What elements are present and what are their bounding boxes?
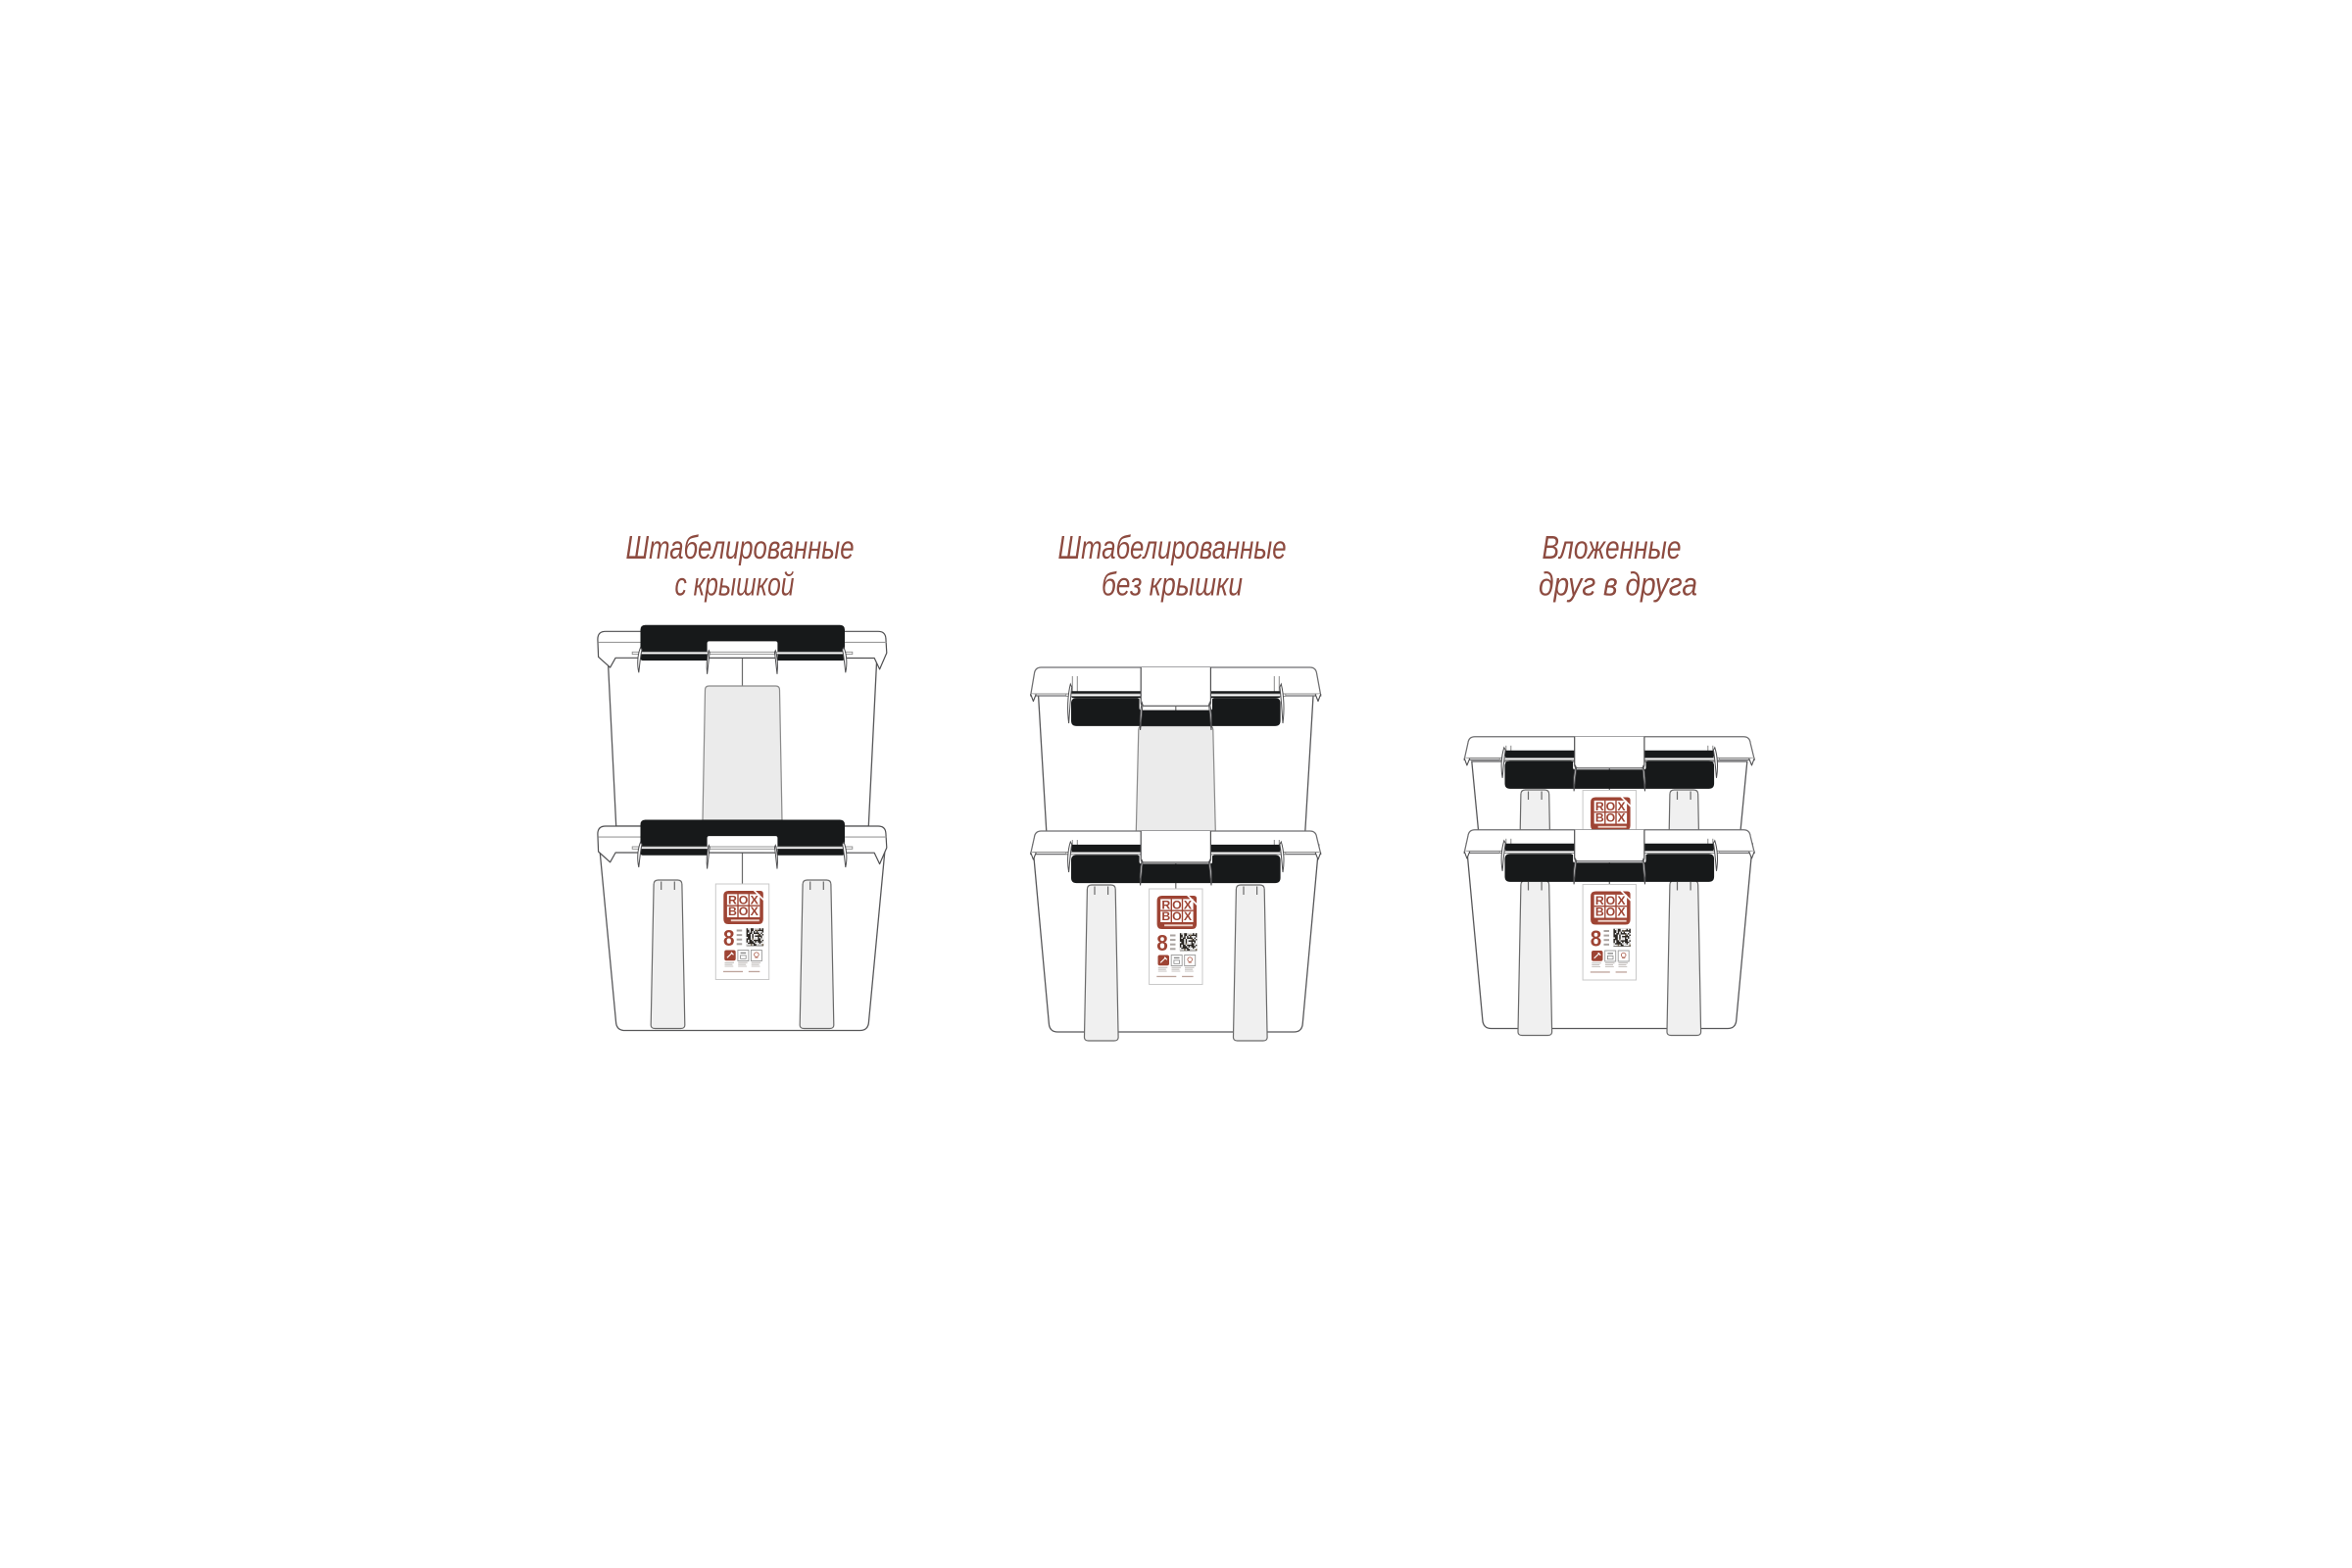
svg-text:8: 8	[1156, 930, 1168, 955]
svg-text:X: X	[1617, 906, 1626, 919]
svg-text:без крышки: без крышки	[1102, 566, 1243, 603]
svg-text:с крышкой: с крышкой	[675, 566, 795, 603]
svg-text:8: 8	[723, 925, 735, 951]
svg-text:B: B	[728, 905, 737, 918]
svg-text:O: O	[1172, 909, 1182, 923]
svg-text:X: X	[1184, 909, 1193, 923]
svg-text:B: B	[1595, 811, 1604, 825]
svg-text:Штабелированные: Штабелированные	[626, 529, 855, 565]
svg-text:X: X	[751, 905, 759, 918]
svg-text:X: X	[1617, 811, 1626, 825]
svg-text:O: O	[1606, 906, 1616, 919]
svg-text:B: B	[1161, 909, 1170, 923]
svg-text:Штабелированные: Штабелированные	[1058, 529, 1287, 565]
svg-text:Вложенные: Вложенные	[1543, 529, 1682, 565]
svg-text:друг в друга: друг в друга	[1539, 566, 1697, 603]
svg-text:8: 8	[1591, 926, 1602, 952]
svg-text:B: B	[1595, 906, 1604, 919]
svg-text:O: O	[1606, 811, 1616, 825]
svg-text:O: O	[739, 905, 749, 918]
